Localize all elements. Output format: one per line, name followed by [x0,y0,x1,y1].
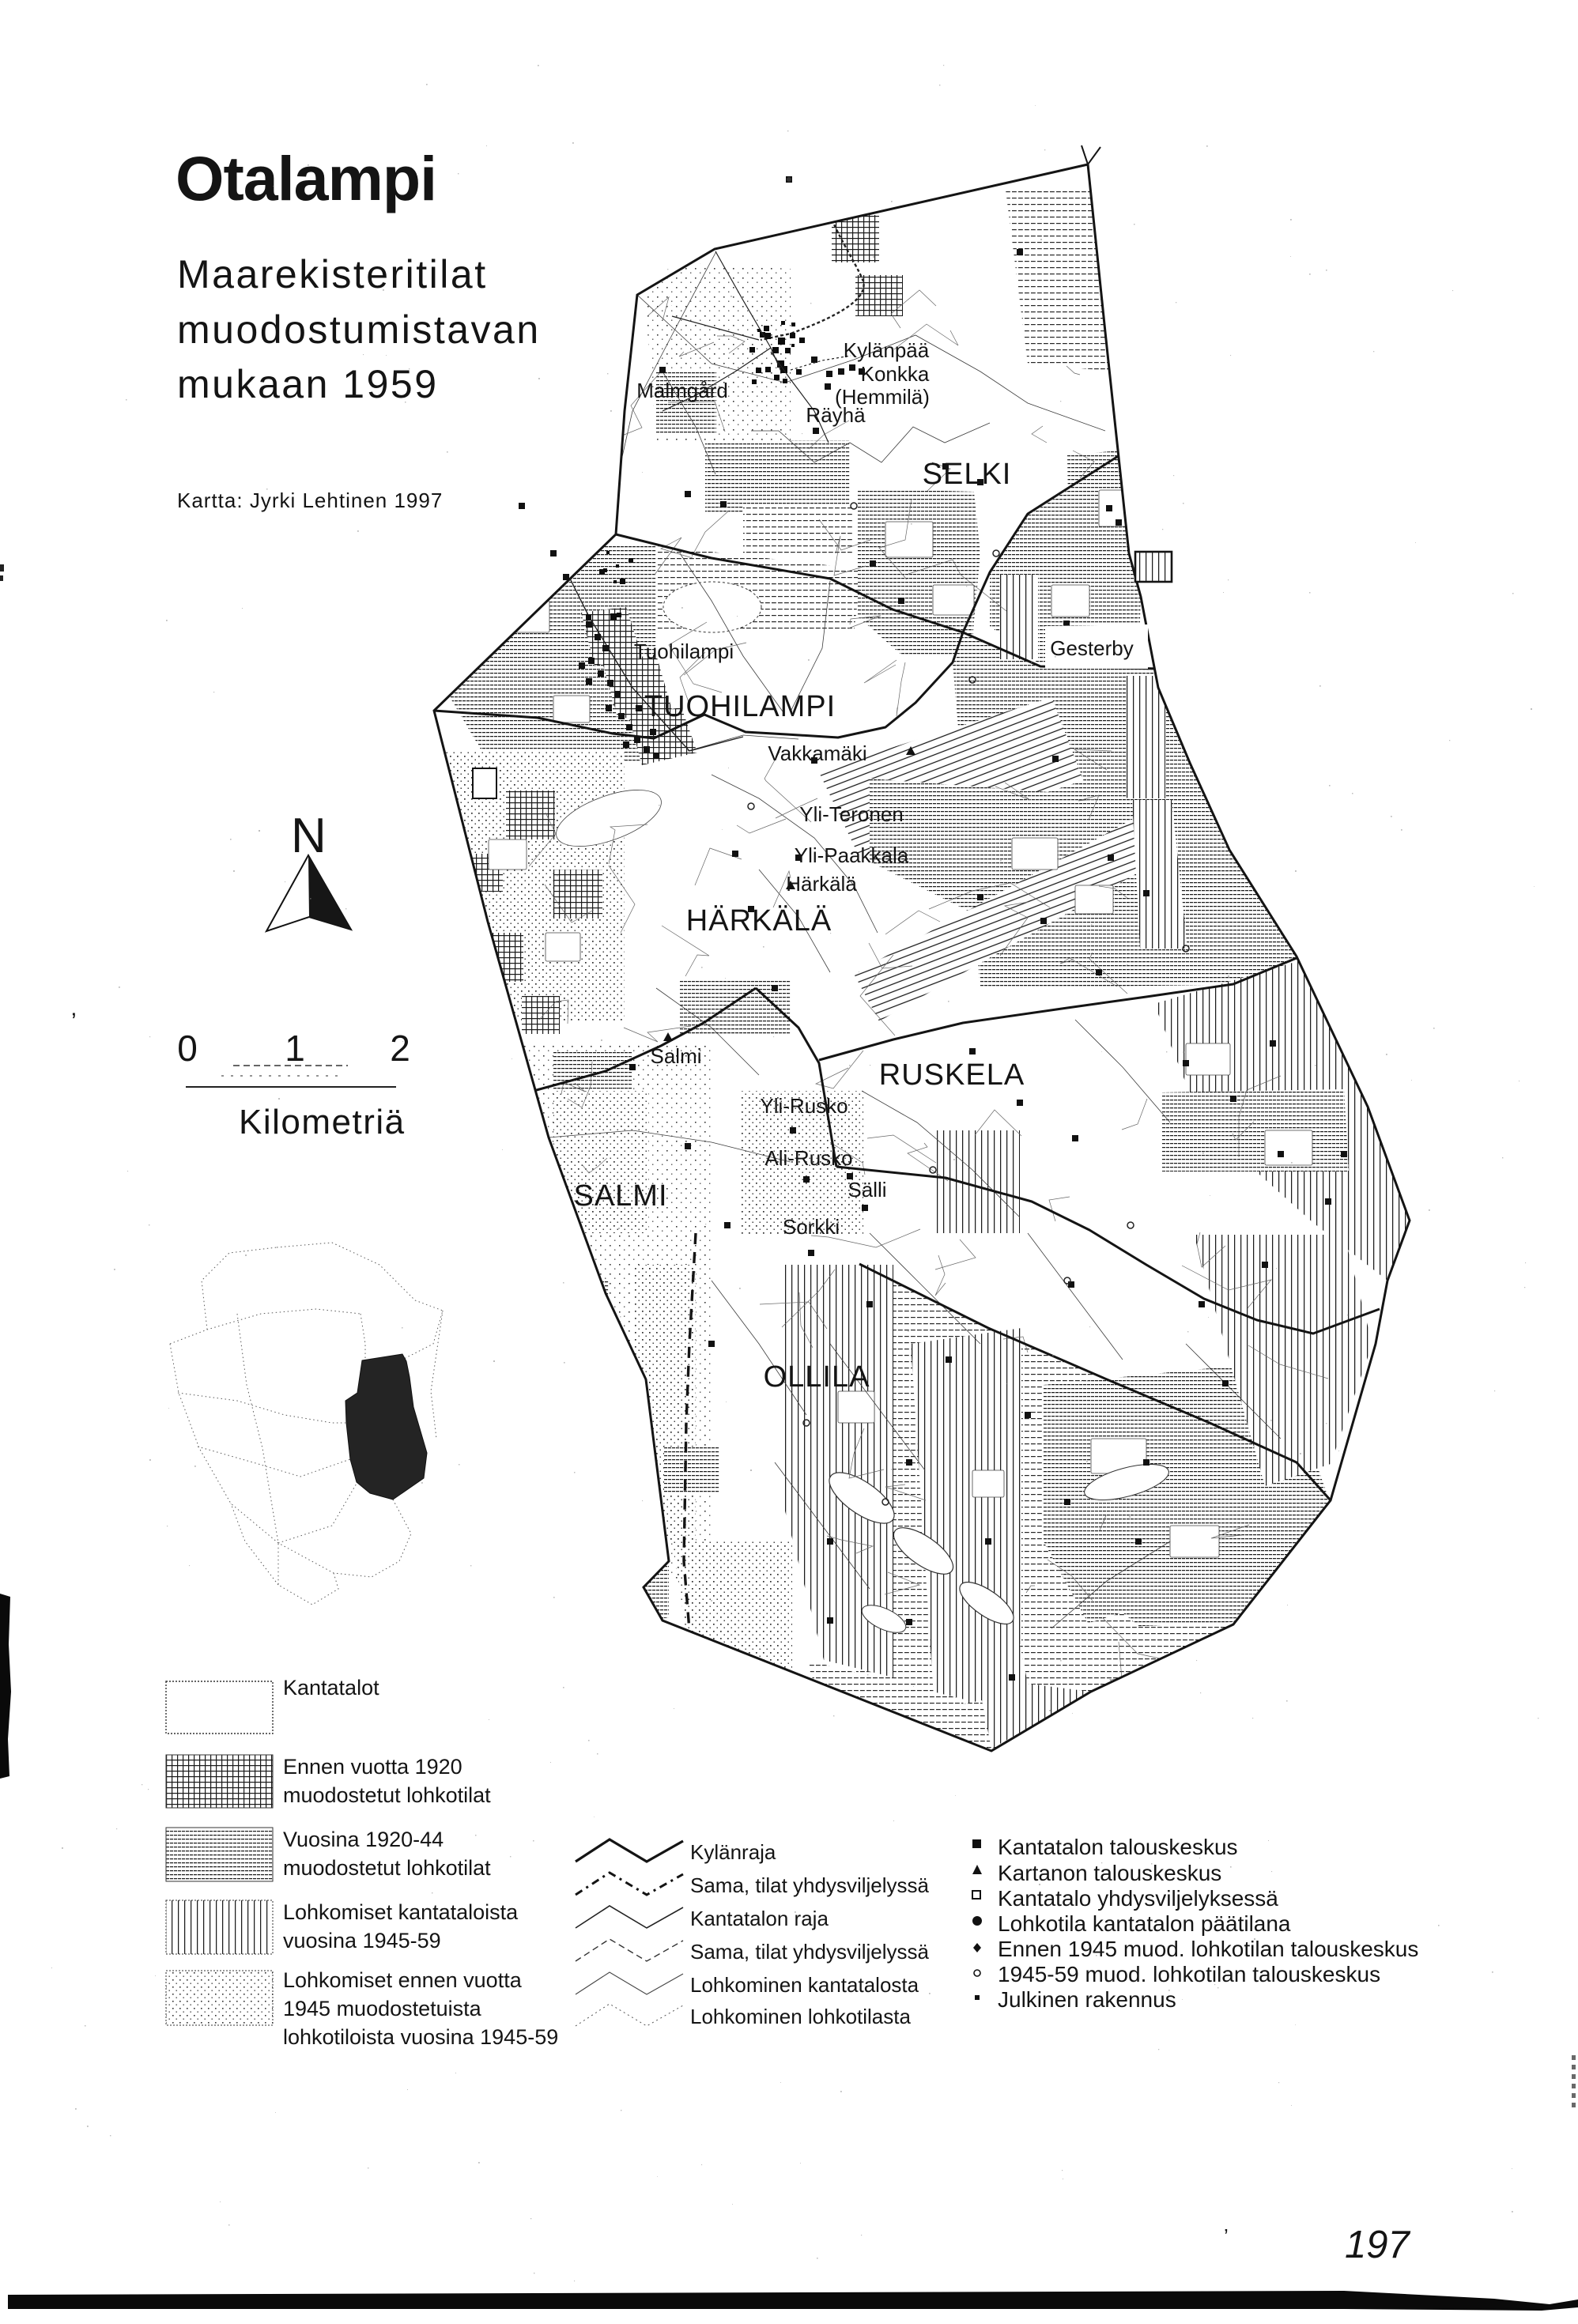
svg-text:Räyhä: Räyhä [806,403,866,427]
svg-text:1945 muodostetuista: 1945 muodostetuista [283,1997,482,2020]
svg-text:Vuosina 1920-44: Vuosina 1920-44 [283,1828,444,1851]
svg-text:Lohkomiset ennen vuotta: Lohkomiset ennen vuotta [283,1968,523,1992]
svg-text:Kantatalot: Kantatalot [283,1676,379,1700]
svg-text:Ennen 1945 muod. lohkotilan ta: Ennen 1945 muod. lohkotilan talouskeskus [998,1937,1418,1961]
svg-text:Kartta: Jyrki Lehtinen 1997: Kartta: Jyrki Lehtinen 1997 [177,489,443,512]
svg-text:Sama, tilat yhdysviljelyssä: Sama, tilat yhdysviljelyssä [690,1873,930,1897]
svg-text:Gesterby: Gesterby [1050,636,1134,660]
svg-text:’: ’ [1224,2224,1229,2248]
svg-text:Vakkamäki: Vakkamäki [768,741,866,765]
svg-text:Lohkominen kantatalosta: Lohkominen kantatalosta [690,1973,919,1997]
svg-text:mukaan 1959: mukaan 1959 [177,362,439,406]
svg-text:Ali-Rusko: Ali-Rusko [764,1146,852,1170]
svg-text:Maarekisteritilat: Maarekisteritilat [177,252,488,296]
svg-text:Sorkki: Sorkki [783,1215,840,1239]
svg-text:Konkka: Konkka [861,362,930,386]
svg-text:vuosina 1945-59: vuosina 1945-59 [283,1929,441,1952]
svg-text:Kylänraja: Kylänraja [690,1840,776,1864]
svg-text:muodostetut lohkotilat: muodostetut lohkotilat [283,1783,491,1807]
svg-text:Sälli: Sälli [848,1178,886,1202]
svg-text:Lohkomiset kantataloista: Lohkomiset kantataloista [283,1900,519,1924]
svg-text:Salmi: Salmi [650,1044,701,1068]
svg-text:TUOHILAMPI: TUOHILAMPI [644,690,836,723]
svg-text:Ennen vuotta 1920: Ennen vuotta 1920 [283,1755,462,1779]
svg-text:Julkinen rakennus: Julkinen rakennus [998,1987,1176,2012]
svg-text:Yli-Paakkala: Yli-Paakkala [795,843,909,867]
svg-text:Kylänpää: Kylänpää [844,338,930,362]
svg-text:Sama, tilat yhdysviljelyssä: Sama, tilat yhdysviljelyssä [690,1940,930,1964]
svg-text:HÄRKÄLÄ: HÄRKÄLÄ [686,904,832,938]
svg-text:Lohkominen lohkotilasta: Lohkominen lohkotilasta [690,2005,911,2028]
svg-text:Yli-Teronen: Yli-Teronen [799,802,904,826]
svg-text:Kilometriä: Kilometriä [239,1103,406,1141]
svg-text:muodostumistavan: muodostumistavan [177,307,541,352]
svg-text:Otalampi: Otalampi [176,143,436,213]
svg-text:1: 1 [285,1028,305,1069]
svg-text:lohkotiloista vuosina 1945-59: lohkotiloista vuosina 1945-59 [283,2025,558,2049]
svg-text:SELKI: SELKI [923,458,1012,491]
svg-text:Kantatalo yhdysviljelyksessä: Kantatalo yhdysviljelyksessä [998,1886,1278,1911]
svg-text:’: ’ [71,1009,77,1035]
svg-text:0: 0 [177,1028,198,1069]
svg-text:Kantatalon talouskeskus: Kantatalon talouskeskus [998,1835,1238,1859]
svg-text:1945-59 muod. lohkotilan talou: 1945-59 muod. lohkotilan talouskeskus [998,1962,1380,1986]
svg-text:Malmgård: Malmgård [636,379,728,402]
svg-text:RUSKELA: RUSKELA [879,1058,1025,1092]
svg-text:Härkälä: Härkälä [786,872,857,896]
svg-text:Lohkotila kantatalon päätilana: Lohkotila kantatalon päätilana [998,1911,1291,1936]
svg-text:Kartanon talouskeskus: Kartanon talouskeskus [998,1861,1221,1885]
svg-text:Tuohilampi: Tuohilampi [634,639,734,663]
svg-text:muodostetut lohkotilat: muodostetut lohkotilat [283,1856,491,1880]
svg-text:2: 2 [390,1028,410,1069]
svg-text:OLLILA: OLLILA [764,1360,870,1394]
svg-text:Kantatalon raja: Kantatalon raja [690,1907,829,1930]
svg-text:Yli-Rusko: Yli-Rusko [760,1094,848,1118]
svg-text:197: 197 [1345,2224,1411,2266]
svg-text:SALMI: SALMI [573,1179,667,1213]
